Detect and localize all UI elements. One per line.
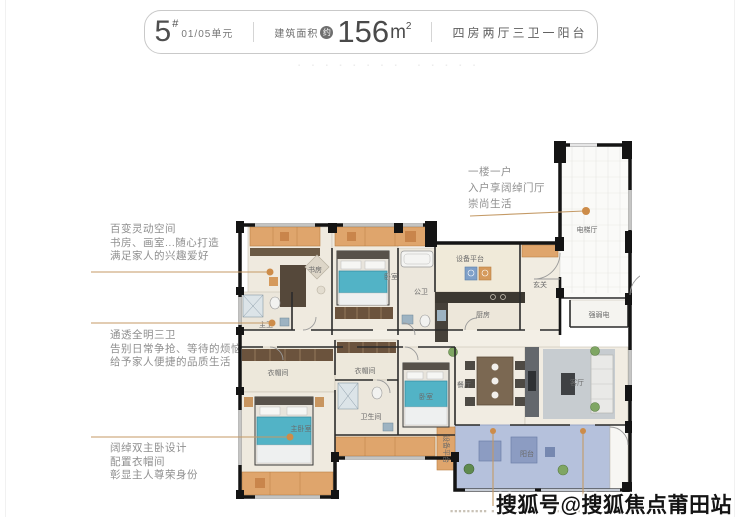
- faint-row-left: ▪ ▪ ▪ ▪ ▪ ▪ ▪ ▪: [298, 63, 402, 69]
- room-label-master-bedroom: 主卧室: [291, 424, 312, 433]
- faint-row-right: ▪ ▪ ▪ ▪ ▪: [418, 63, 480, 69]
- floorplan: 电梯厅 设备平台 玄关 强弱电 厨房 公卫 书房 卧室 主卫 衣帽间 衣帽间 卫…: [225, 135, 640, 507]
- room-label-balcony: 阳台: [520, 449, 534, 458]
- room-label-bedroom-right: 卧室: [419, 392, 433, 401]
- annotation-line: 彰显主人尊荣身份: [110, 469, 198, 483]
- area-unit: m2: [390, 21, 411, 44]
- annotation-three-baths: 通透全明三卫 告别日常争抢、等待的烦恼 给予家人便捷的品质生活: [110, 329, 242, 370]
- annotation-line: 通透全明三卫: [110, 329, 242, 343]
- room-label-utility: 强弱电: [589, 310, 610, 319]
- annotation-line: 配置衣帽间: [110, 456, 198, 470]
- header-divider-2: [431, 22, 432, 42]
- building-hash: #: [172, 18, 178, 30]
- area-exponent: 2: [406, 21, 412, 32]
- annotation-line: 百变灵动空间: [110, 223, 219, 237]
- annotation-line: 给予家人便捷的品质生活: [110, 356, 242, 370]
- room-label-closet-mid: 衣帽间: [355, 366, 376, 375]
- layout-description: 四房两厅三卫一阳台: [452, 24, 587, 41]
- room-label-closet-left: 衣帽间: [268, 368, 289, 377]
- room-label-public-bath: 公卫: [414, 288, 428, 296]
- annotation-line: 阔绰双主卧设计: [110, 442, 198, 456]
- area-label: 建筑面积: [274, 25, 318, 40]
- faint-watermark-row: ▪ ▪ ▪ ▪ ▪ ▪ ▪ ▪ ▪ ▪ ▪ ▪ ▪: [298, 63, 480, 69]
- building-unit: 5 # 01/05单元: [155, 16, 234, 48]
- sohu-watermark: 搜狐号@搜狐焦点莆田站: [496, 489, 732, 517]
- building-number: 5: [155, 16, 172, 48]
- room-label-equipment-top: 设备平台: [456, 254, 484, 263]
- page-edge-left: [5, 0, 6, 517]
- room-label-bathroom: 卫生间: [361, 412, 382, 421]
- approx-badge: 约: [320, 26, 333, 39]
- unit-label: 01/05单元: [181, 25, 233, 40]
- annotation-line: 告别日常争抢、等待的烦恼: [110, 343, 242, 357]
- area-value: 156: [337, 16, 389, 48]
- room-label-elevator-hall: 电梯厅: [577, 225, 598, 234]
- annotation-double-master: 阔绰双主卧设计 配置衣帽间 彰显主人尊荣身份: [110, 442, 198, 483]
- annotation-line: 书房、画室...随心打造: [110, 237, 219, 251]
- room-label-dining: 餐厅: [457, 380, 471, 389]
- room-label-bedroom-top: 卧室: [384, 272, 398, 281]
- floorplan-page: 5 # 01/05单元 建筑面积 约 156 m2 四房两厅三卫一阳台 ▪ ▪ …: [0, 0, 740, 517]
- truncated-caption-left: ▪▪▪▪▪▪▪▪▪ ▪: [450, 506, 495, 517]
- room-label-study: 书房: [308, 265, 322, 274]
- page-edge-right: [734, 0, 735, 517]
- room-label-living: 客厅: [570, 378, 584, 387]
- dining-furniture: [465, 357, 525, 406]
- room-label-master-bath: 主卫: [259, 320, 273, 329]
- room-label-equipment-bottom: 设备平台: [442, 435, 451, 463]
- annotation-line: 满足家人的兴趣爱好: [110, 250, 219, 264]
- bed-master: [244, 397, 324, 465]
- header-divider-1: [253, 22, 254, 42]
- room-label-kitchen: 厨房: [476, 310, 490, 319]
- room-label-foyer: 玄关: [533, 280, 547, 289]
- bed-top: [337, 251, 389, 305]
- annotation-flex-space: 百变灵动空间 书房、画室...随心打造 满足家人的兴趣爱好: [110, 223, 219, 264]
- unit-header: 5 # 01/05单元 建筑面积 约 156 m2 四房两厅三卫一阳台: [144, 10, 598, 54]
- area-group: 建筑面积 约 156 m2: [274, 16, 411, 48]
